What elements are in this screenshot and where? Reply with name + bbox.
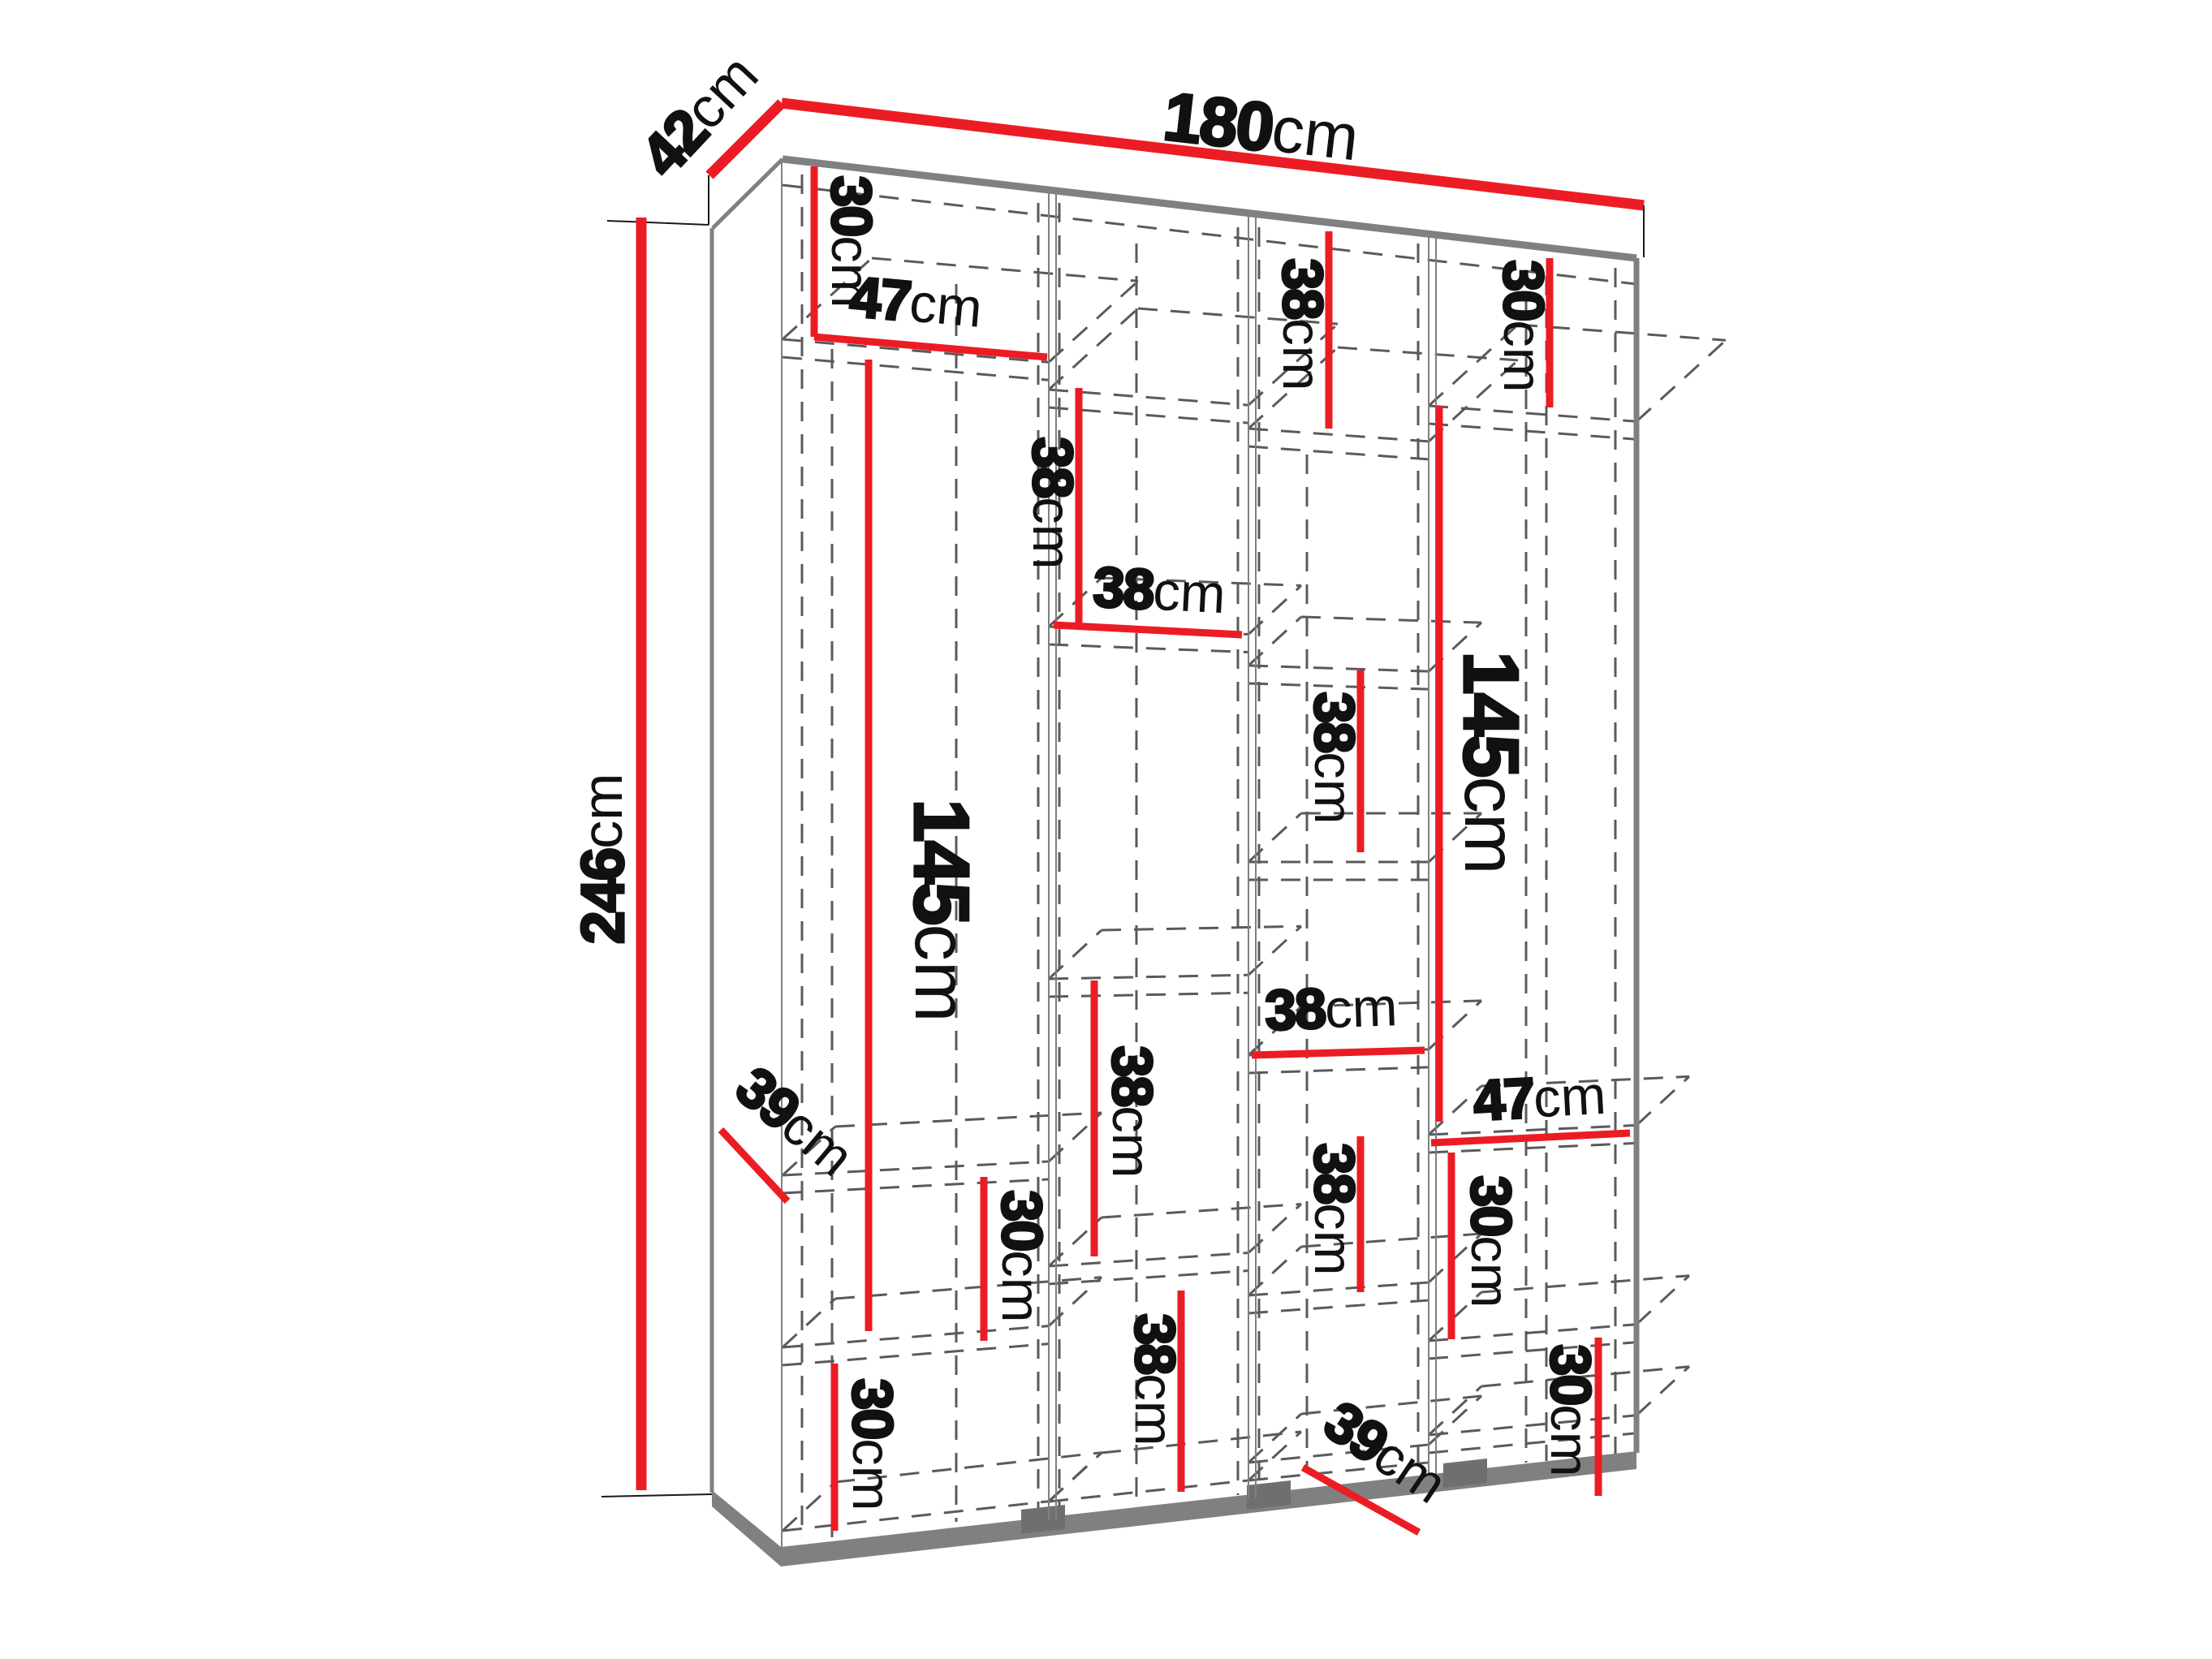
shelf-dashed-line bbox=[1049, 1271, 1248, 1284]
dimension-label-col3-38cm-mid: 38cm bbox=[1303, 1143, 1366, 1275]
dimension-tick bbox=[602, 1494, 712, 1497]
dimension-label-col1-30cm-mid: 30cm bbox=[990, 1190, 1054, 1322]
shelf-dashed-line bbox=[1049, 644, 1248, 653]
dimension-col3-38cm-mid: 38cm bbox=[1303, 1136, 1366, 1292]
shelf-dashed-line bbox=[1049, 1253, 1248, 1266]
dimension-label-col4-30cm-top: 30cm bbox=[1492, 260, 1555, 392]
foot-2 bbox=[1247, 1480, 1291, 1510]
dimension-label-col3-38cm-upper: 38cm bbox=[1303, 692, 1366, 824]
dimension-col4-145cm: 145cm bbox=[1439, 406, 1534, 1122]
dimension-label-col3-38cm-width: 38cm bbox=[1264, 975, 1399, 1043]
dimension-col3-38cm-width: 38cm bbox=[1252, 975, 1425, 1055]
dimension-label-col1-47cm: 47cm bbox=[847, 265, 985, 340]
dimension-label-col2-38cm-mid: 38cm bbox=[1101, 1045, 1164, 1178]
shelf-dashed-line bbox=[1248, 1282, 1429, 1295]
dimension-label-col3-38cm-top: 38cm bbox=[1271, 258, 1335, 390]
shelf-dashed-line bbox=[1248, 683, 1429, 689]
dimension-label-col2-38cm-bottom: 38cm bbox=[1123, 1313, 1187, 1446]
dimension-label-col1-39cm: 39cm bbox=[724, 1054, 866, 1188]
shelf-depth-diagonal bbox=[1636, 1276, 1689, 1325]
shelf-dashed-line bbox=[1429, 1433, 1636, 1453]
shelf-dashed-line bbox=[1429, 1416, 1636, 1435]
shelf-dashed-line bbox=[1248, 666, 1429, 671]
dimension-col1-39cm: 39cm bbox=[721, 1054, 866, 1201]
shelf-dashed-line bbox=[1301, 617, 1481, 623]
dimension-label-height-246cm: 246cm bbox=[569, 773, 636, 945]
shelf-depth-diagonal bbox=[1636, 1076, 1689, 1125]
shelf-dashed-line bbox=[783, 1326, 1049, 1347]
dimension-label-col1-30cm-bottom: 30cm bbox=[841, 1378, 904, 1510]
shelf-depth-diagonal bbox=[783, 1299, 835, 1347]
wardrobe-edge bbox=[783, 159, 1636, 258]
shelf-dashed-line bbox=[1049, 993, 1248, 997]
shelf-dashed-line bbox=[1248, 1067, 1429, 1073]
shelf-depth-diagonal bbox=[783, 1482, 835, 1531]
shelf-dashed-line bbox=[1102, 926, 1301, 930]
shelf-dashed-line bbox=[1049, 975, 1248, 979]
dimension-label-col4-47cm: 47cm bbox=[1472, 1062, 1607, 1132]
foot-1 bbox=[1021, 1505, 1065, 1534]
dimension-col3-39cm-bottom: 39cm bbox=[1303, 1389, 1459, 1532]
dimension-col4-30cm-top: 30cm bbox=[1492, 258, 1555, 407]
dimension-line-col1-47cm bbox=[814, 337, 1047, 357]
dimension-tick bbox=[607, 221, 709, 225]
dimension-label-col1-145cm: 145cm bbox=[898, 799, 985, 1022]
dimension-label-width-42cm: 42cm bbox=[627, 41, 772, 189]
shelf-dashed-line bbox=[1248, 429, 1429, 442]
dimension-label-col2-38cm-width: 38cm bbox=[1092, 555, 1227, 625]
dimension-label-col4-145cm: 145cm bbox=[1447, 651, 1534, 874]
dimension-label-col2-38cm-top: 38cm bbox=[1021, 437, 1084, 569]
dimension-line-col2-38cm-width bbox=[1054, 625, 1242, 635]
diagram-canvas: 42cm180cm246cm30cm47cm145cm39cm30cm30cm3… bbox=[0, 0, 2212, 1659]
dimension-width-180cm: 180cm bbox=[782, 78, 1644, 205]
shelf-dashed-line bbox=[1429, 424, 1636, 439]
shelf-dashed-line bbox=[1248, 446, 1429, 459]
shelf-dashed-line bbox=[1102, 1204, 1301, 1217]
shelf-dashed-line bbox=[783, 1344, 1049, 1365]
dimension-col3-38cm-upper: 38cm bbox=[1303, 670, 1366, 852]
shelf-depth-diagonal bbox=[1636, 340, 1726, 421]
dimension-width-42cm: 42cm bbox=[627, 41, 782, 189]
dimension-label-width-180cm: 180cm bbox=[1160, 78, 1363, 176]
base-side-band bbox=[712, 1490, 781, 1566]
wardrobe-dimension-diagram: 42cm180cm246cm30cm47cm145cm39cm30cm30cm3… bbox=[0, 0, 2212, 1659]
dimension-label-col4-30cm-bottom: 30cm bbox=[1539, 1344, 1602, 1476]
dimension-col2-38cm-top: 38cm bbox=[1021, 388, 1084, 625]
shelf-dashed-line bbox=[1429, 1325, 1636, 1341]
shelf-dashed-line bbox=[835, 1113, 1102, 1127]
shelf-dashed-line bbox=[1429, 1342, 1636, 1359]
dimension-col2-38cm-bottom: 38cm bbox=[1123, 1291, 1187, 1492]
dimension-label-col4-30cm-mid: 30cm bbox=[1460, 1175, 1523, 1308]
dimension-col4-30cm-bottom: 30cm bbox=[1539, 1338, 1602, 1496]
shelf-dashed-line bbox=[835, 1278, 1102, 1299]
shelf-dashed-line bbox=[783, 357, 1049, 380]
base-front-band bbox=[781, 1451, 1636, 1566]
dimension-line-col3-38cm-width bbox=[1252, 1050, 1425, 1055]
wardrobe-edge bbox=[713, 159, 783, 228]
shelf-depth-diagonal bbox=[1636, 1367, 1689, 1416]
dimension-line-col4-47cm bbox=[1431, 1133, 1630, 1143]
dimension-height-246cm: 246cm bbox=[569, 218, 641, 1490]
dimension-col1-30cm-bottom: 30cm bbox=[834, 1364, 904, 1531]
shelf-dashed-line bbox=[1248, 1300, 1429, 1313]
dimension-col1-30cm-mid: 30cm bbox=[984, 1177, 1054, 1341]
